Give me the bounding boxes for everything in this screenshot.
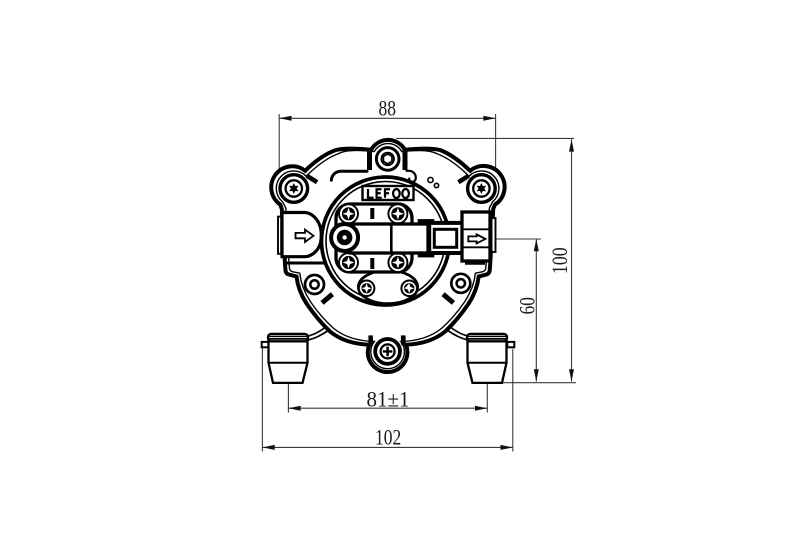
svg-text:100: 100 [547,247,572,274]
svg-text:102: 102 [375,424,401,449]
svg-text:88: 88 [379,96,397,121]
svg-text:81±1: 81±1 [367,387,410,412]
svg-text:60: 60 [515,297,540,314]
